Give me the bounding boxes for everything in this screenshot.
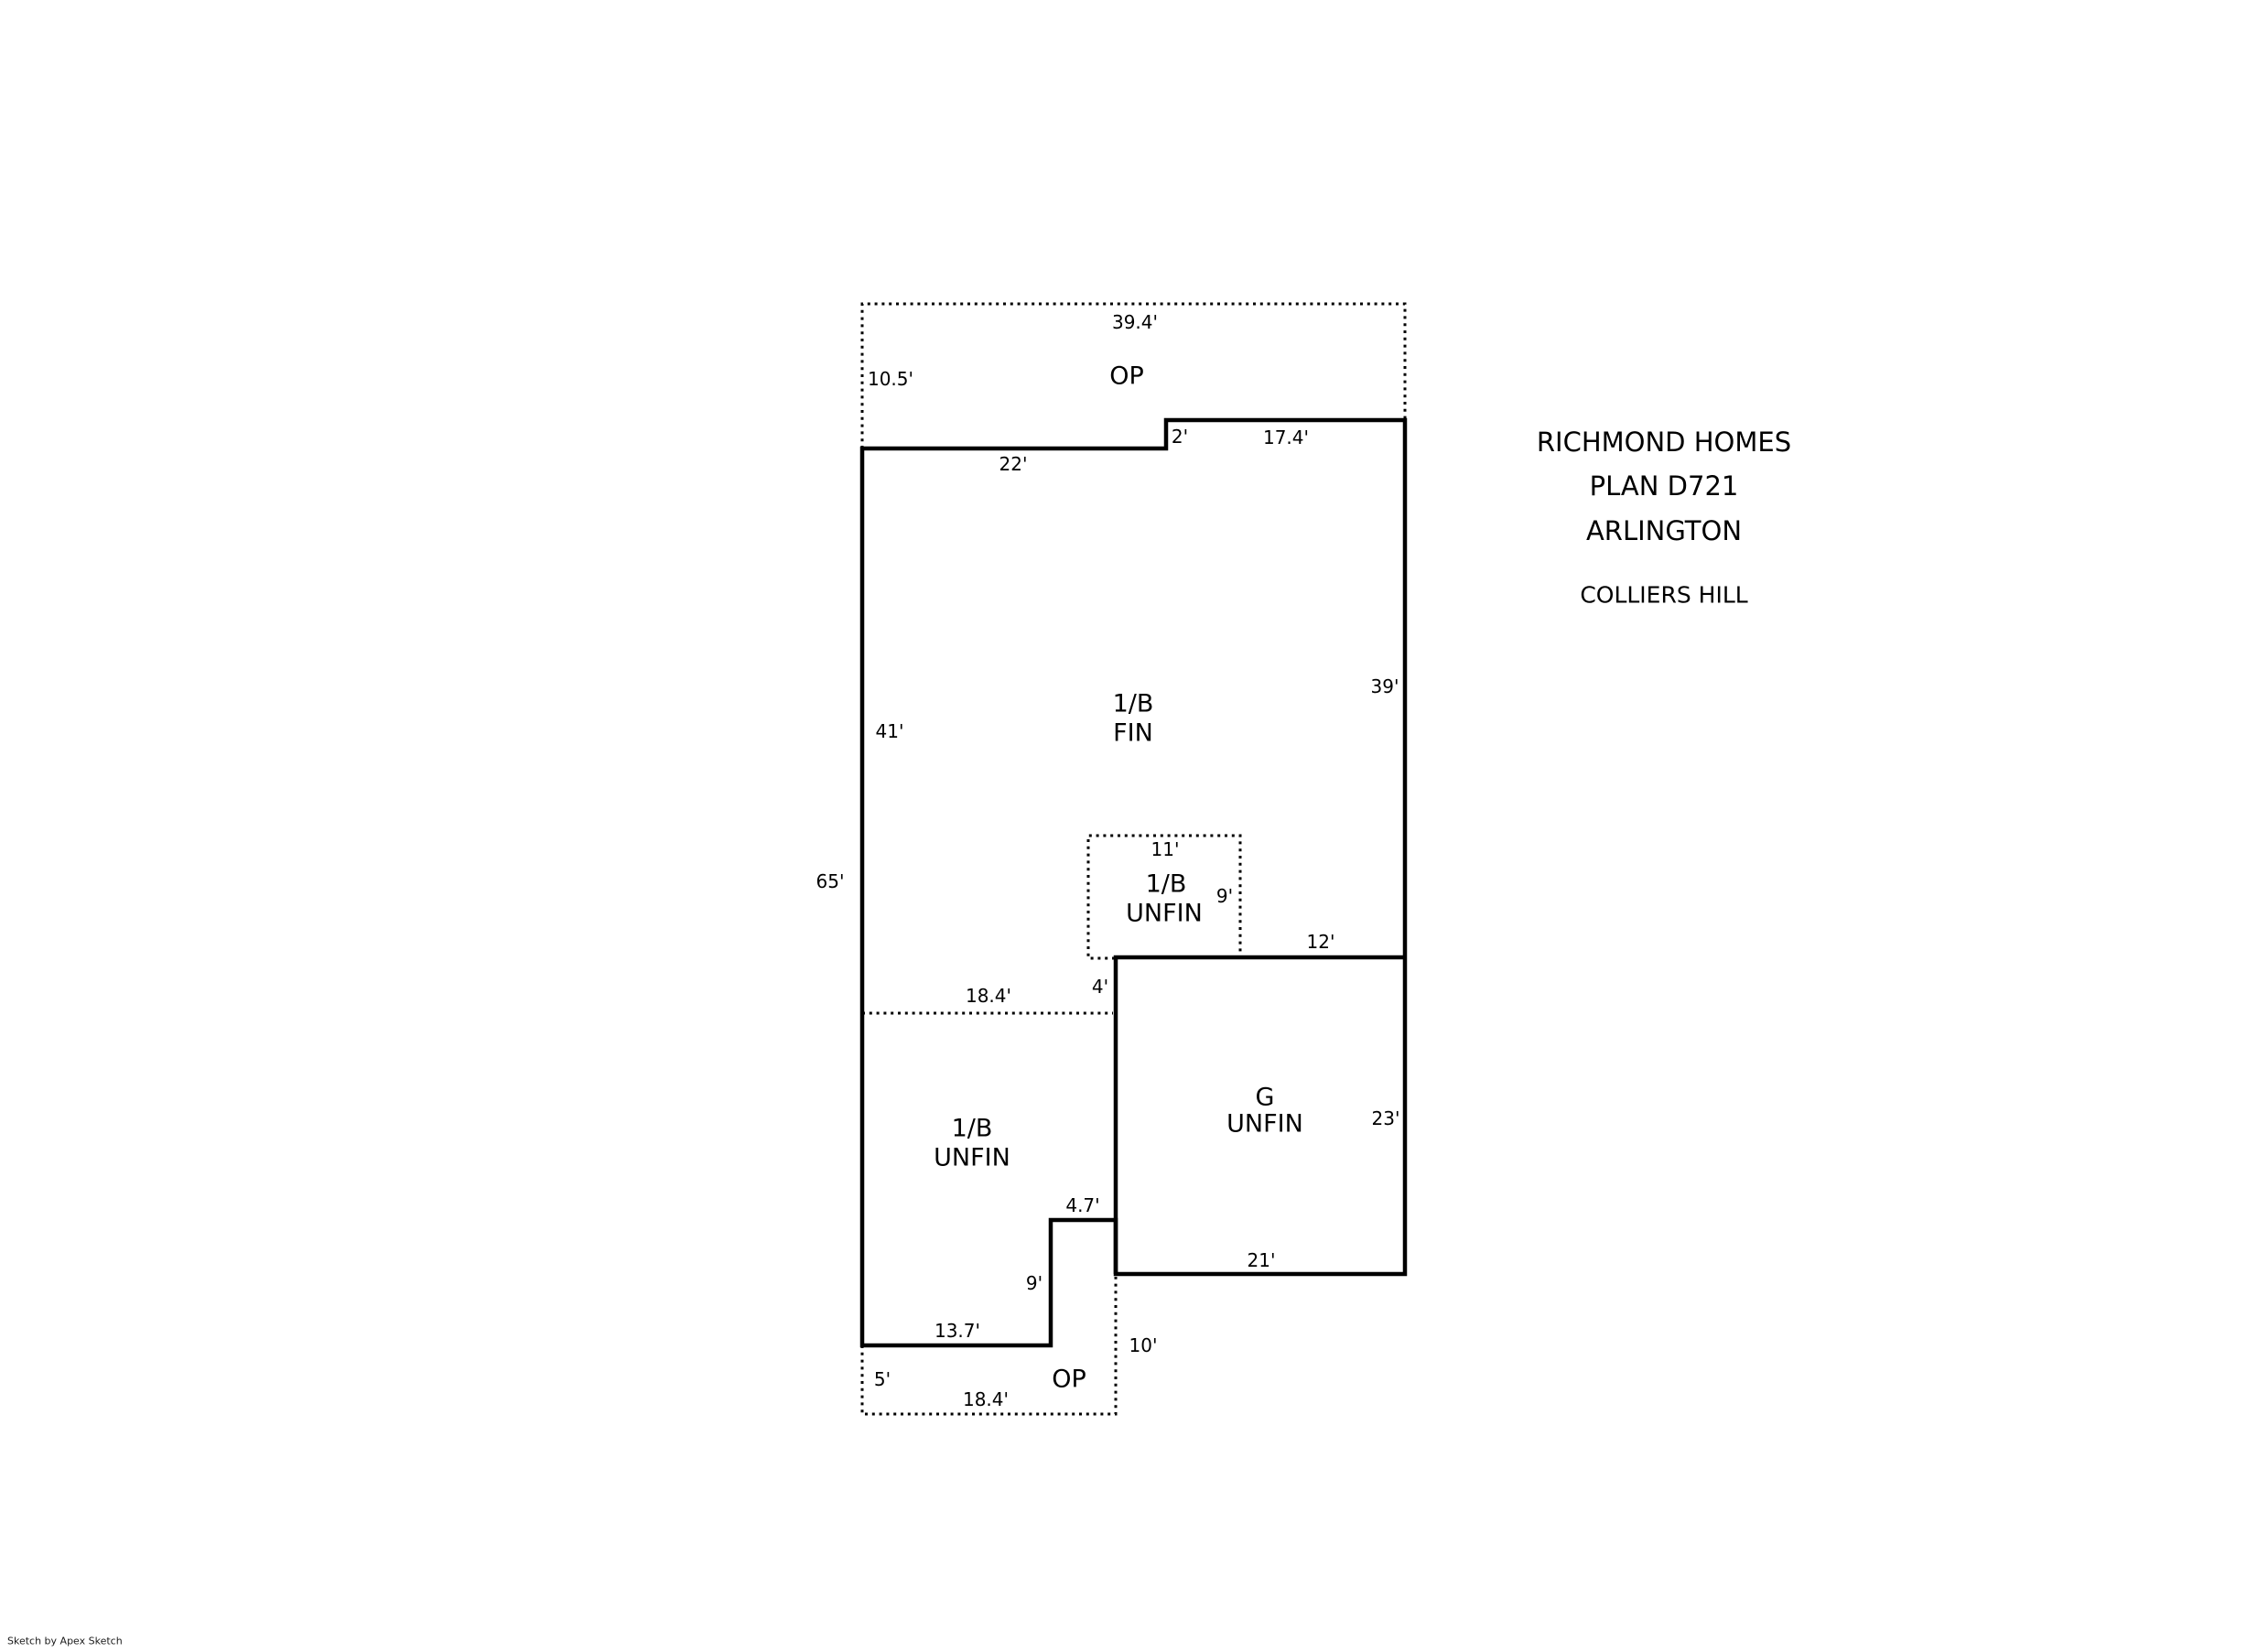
sketch-svg: 39.4' 10.5' OP 22' 2' 17.4' 1/B FIN 41' … xyxy=(0,0,2247,1648)
dim-top-right-wall: 17.4' xyxy=(1263,426,1309,448)
dim-garage-top: 12' xyxy=(1307,931,1335,953)
dim-mid-line: 18.4' xyxy=(966,985,1011,1007)
dim-notch-height: 9' xyxy=(1026,1272,1042,1294)
dim-bottom-porch-left: 5' xyxy=(874,1368,891,1390)
main-perimeter-wall xyxy=(862,420,1405,1345)
dim-bottom-porch-width: 18.4' xyxy=(963,1388,1009,1410)
room-label-top-porch: OP xyxy=(1109,362,1144,391)
dim-bottom-porch-right: 10' xyxy=(1129,1334,1158,1356)
dim-bottom-wall: 13.7' xyxy=(934,1320,980,1342)
room-label-garage-1: G xyxy=(1256,1084,1275,1112)
dim-left-wall-total: 65' xyxy=(816,870,845,892)
room-label-inner-unfin-2: UNFIN xyxy=(1126,900,1203,928)
dim-top-porch-height: 10.5' xyxy=(868,368,913,390)
dim-top-left-wall: 22' xyxy=(999,453,1028,475)
room-label-lower-unfin-1: 1/B xyxy=(952,1115,993,1143)
room-label-basement-fin-1: 1/B xyxy=(1113,690,1154,718)
title-model: ARLINGTON xyxy=(1586,515,1742,546)
dim-right-wall-upper: 39' xyxy=(1371,675,1399,697)
room-label-basement-fin-2: FIN xyxy=(1113,719,1153,748)
title-plan: PLAN D721 xyxy=(1590,470,1739,502)
title-community: COLLIERS HILL xyxy=(1580,582,1747,609)
dim-notch-width: 4.7' xyxy=(1065,1194,1099,1216)
title-builder: RICHMOND HOMES xyxy=(1537,426,1791,458)
room-label-inner-unfin-1: 1/B xyxy=(1146,870,1187,899)
dim-top-porch-width: 39.4' xyxy=(1112,311,1158,333)
sketch-credit: Sketch by Apex Sketch xyxy=(7,1636,123,1647)
room-label-garage-2: UNFIN xyxy=(1226,1110,1303,1139)
dim-garage-step: 4' xyxy=(1092,976,1108,998)
dim-garage-right: 23' xyxy=(1372,1107,1400,1129)
room-label-lower-unfin-2: UNFIN xyxy=(934,1144,1010,1172)
room-label-bottom-porch: OP xyxy=(1052,1366,1086,1394)
dim-garage-bottom: 21' xyxy=(1248,1249,1276,1271)
dim-inner-box-width: 11' xyxy=(1151,838,1180,860)
dim-inner-box-height: 9' xyxy=(1216,885,1233,907)
dim-top-step: 2' xyxy=(1172,426,1188,448)
dim-left-wall-upper: 41' xyxy=(876,720,904,742)
floor-plan-sketch: 39.4' 10.5' OP 22' 2' 17.4' 1/B FIN 41' … xyxy=(0,0,2247,1648)
